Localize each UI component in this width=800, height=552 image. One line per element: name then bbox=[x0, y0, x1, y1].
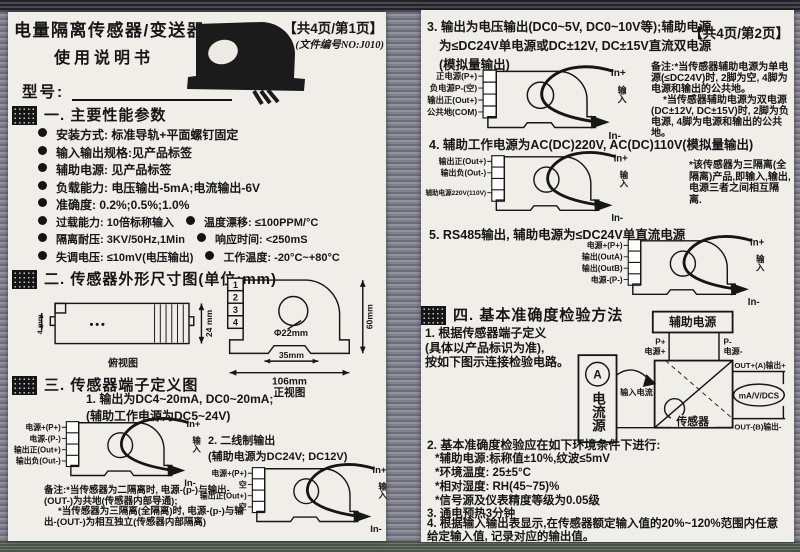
in-minus-label: In- bbox=[370, 524, 382, 535]
bullet-icon bbox=[205, 251, 214, 260]
wiring-2-title: 2. 二线制输出 (辅助电源为DC24V; DC12V) bbox=[208, 432, 347, 464]
model-blank-line bbox=[72, 99, 232, 101]
pin-label: 电源+(P+) bbox=[25, 422, 61, 432]
input-label: 输入 bbox=[192, 436, 202, 454]
section-4-marker bbox=[421, 306, 446, 325]
dim-4mm: 4 mm bbox=[36, 314, 45, 334]
in-plus-label: In+ bbox=[750, 237, 765, 248]
pin-label: 输出负(Out-) bbox=[441, 168, 487, 178]
param-row: 负载能力: 电压输出-5mA;电流输出-6V bbox=[38, 179, 260, 196]
param-row: 失调电压: ≤10mV(电压输出)工作温度: -20°C~+80°C bbox=[38, 249, 340, 265]
check-step-1: 1. 根据传感器端子定义 (具体以产品标识为准), 按如下图示连接检验电路。 bbox=[425, 326, 569, 370]
in-minus-label: In- bbox=[611, 213, 623, 224]
bullet-icon bbox=[38, 198, 47, 207]
terminal-number: 1 bbox=[233, 280, 238, 290]
section-2-marker bbox=[12, 270, 37, 289]
aux-power-box-label: 辅助电源 bbox=[669, 315, 716, 329]
pin-label: 空 bbox=[239, 502, 247, 512]
bullet-icon bbox=[38, 146, 47, 155]
dimension-top-view: 4 mm 24 mm 俯视图 bbox=[32, 290, 214, 378]
pin-label: 输出正(Out+) bbox=[200, 491, 247, 501]
in-plus-label: In+ bbox=[614, 153, 629, 164]
p-plus-label: P+ bbox=[655, 337, 665, 346]
out-minus-label: OUT-(B)输出- bbox=[734, 421, 781, 431]
wiring-diagram-1: 电源+(P+) 电源-(P-) 输出正(Out+) 输出负(Out-) In+ … bbox=[8, 416, 210, 489]
pin-label: 输出正(Out+) bbox=[427, 95, 477, 105]
wiring-3-note: 备注:*当传感器辅助电源为单电源(≤DC24V)时, 2脚为空, 4脚为电源和输… bbox=[651, 62, 793, 139]
bullet-icon bbox=[38, 233, 47, 242]
pin-label: 电源-(P-) bbox=[591, 274, 623, 284]
bullet-icon bbox=[38, 163, 47, 172]
wiring-diagram-2: 电源+(P+) 空 输出正(Out+) 空 In+ 输入 In- bbox=[194, 462, 396, 535]
param-row: 隔离耐压: 3KV/50Hz,1Min响应时间: <250mS bbox=[38, 231, 308, 247]
product-photo bbox=[166, 14, 316, 108]
page-subtitle: 使用说明书 bbox=[54, 44, 154, 68]
dim-60mm: 60mm bbox=[364, 304, 374, 329]
sensor-body-silhouette bbox=[187, 22, 305, 91]
dim-24mm: 24 mm bbox=[204, 310, 214, 338]
pin-label: 电源+(P+) bbox=[587, 240, 623, 250]
p-minus-label: P- bbox=[724, 337, 732, 346]
pin-label: 输出正(Out+) bbox=[14, 445, 61, 455]
section-1-heading: 一. 主要性能参数 bbox=[44, 104, 166, 125]
bullet-icon bbox=[197, 233, 206, 242]
pin-label: 输出正(Out+) bbox=[439, 156, 487, 166]
input-label: 输入 bbox=[378, 482, 388, 500]
in-plus-label: In+ bbox=[611, 68, 626, 79]
check-step-4: 4. 根据输入输出表显示,在传感器额定输入值的20%~120%范围内任意给定输入… bbox=[427, 518, 789, 543]
pin-label: 电源+(P+) bbox=[211, 468, 247, 478]
pin-label: 正电源(P+) bbox=[436, 71, 477, 81]
param-row: 过载能力: 10倍标称输入温度漂移: ≤100PPM/°C bbox=[38, 214, 318, 230]
power-minus-label: 电源- bbox=[724, 346, 743, 356]
model-label: 型号: bbox=[22, 80, 64, 102]
wiring-diagram-5: 电源+(P+) 输出(OutA) 输出(OutB) 电源-(P-) In+ 输入… bbox=[569, 234, 774, 308]
dimension-front-view: 1 2 3 4 Φ22mm 35mm 106mm 60mm 正视图 bbox=[220, 276, 384, 398]
bullet-icon bbox=[186, 216, 195, 225]
check-circuit-diagram: 辅助电源 P+ 电源+ P- 电源- A 电流源 输入电流 传感器 OUT+(A… bbox=[571, 308, 789, 444]
param-row: 准确度: 0.2%;0.5%;1.0% bbox=[38, 196, 189, 213]
bullet-icon bbox=[38, 251, 47, 260]
wiring-4-note: *该传感器为三隔离(全隔离)产品,即输入,输出,电源三者之间相互隔离. bbox=[689, 160, 791, 206]
top-view-caption: 俯视图 bbox=[108, 357, 138, 370]
param-row: 辅助电源: 见产品标签 bbox=[38, 161, 171, 178]
pin-label: 输出(OutB) bbox=[582, 263, 623, 273]
out-plus-label: OUT+(A)输出+ bbox=[734, 360, 786, 370]
section-3-marker bbox=[12, 376, 37, 395]
param-row: 输入输出规格:见产品标签 bbox=[38, 144, 192, 161]
sensor-pins bbox=[254, 90, 278, 104]
input-label: 输入 bbox=[616, 85, 627, 105]
terminal-number: 3 bbox=[233, 305, 238, 315]
input-label: 输入 bbox=[755, 254, 765, 273]
dim-hole: Φ22mm bbox=[274, 328, 308, 338]
in-plus-label: In+ bbox=[186, 419, 200, 430]
ammeter-label: A bbox=[593, 369, 602, 382]
bullet-icon bbox=[38, 216, 47, 225]
pin-label: 负电源P-(空) bbox=[430, 83, 478, 93]
pin-label: 电源-(P-) bbox=[29, 433, 61, 443]
sensor-box-label: 传感器 bbox=[675, 414, 709, 428]
in-plus-label: In+ bbox=[372, 465, 386, 476]
pin-label: 辅助电源220V(110V) bbox=[425, 188, 486, 197]
front-view-caption: 正视图 bbox=[274, 386, 306, 399]
section-1-marker bbox=[12, 106, 37, 125]
pin-label: 输出负(Out-) bbox=[16, 456, 61, 466]
power-plus-label: 电源+ bbox=[644, 346, 665, 356]
wiring-diagram-3: 正电源(P+) 负电源P-(空) 输出正(Out+) 公共地(COM) In+ … bbox=[421, 64, 636, 142]
current-source-label: 电流源 bbox=[590, 390, 606, 433]
terminal-number: 2 bbox=[233, 292, 238, 302]
scanned-manual: { "p1": { "title": "电量隔离传感器/变送器", "subti… bbox=[0, 0, 800, 552]
in-minus-label: In- bbox=[748, 297, 760, 308]
wiring-diagram-4: 输出正(Out+) 输出负(Out-) 辅助电源220V(110V) In+ 输… bbox=[423, 150, 638, 224]
dim-35mm: 35mm bbox=[279, 350, 304, 360]
param-row: 安装方式: 标准导轨+平面螺钉固定 bbox=[38, 126, 238, 143]
input-label: 输入 bbox=[619, 170, 629, 189]
pin-label: 空 bbox=[239, 479, 247, 489]
manual-page-1: 电量隔离传感器/变送器 使用说明书 【共4页/第1页】 (文件编号NO:J010… bbox=[8, 12, 386, 541]
meter-label: mA/V/DCS bbox=[739, 392, 780, 401]
bullet-icon bbox=[38, 128, 47, 137]
input-current-label: 输入电流 bbox=[620, 387, 653, 397]
pin-label: 公共地(COM) bbox=[427, 107, 477, 117]
pin-label: 输出(OutA) bbox=[582, 252, 623, 262]
bullet-icon bbox=[38, 181, 47, 190]
manual-page-2: 【共4页/第2页】 3. 输出为电压输出(DC0~5V, DC0~10V等);辅… bbox=[421, 10, 794, 542]
dim-106mm: 106mm bbox=[272, 376, 307, 387]
